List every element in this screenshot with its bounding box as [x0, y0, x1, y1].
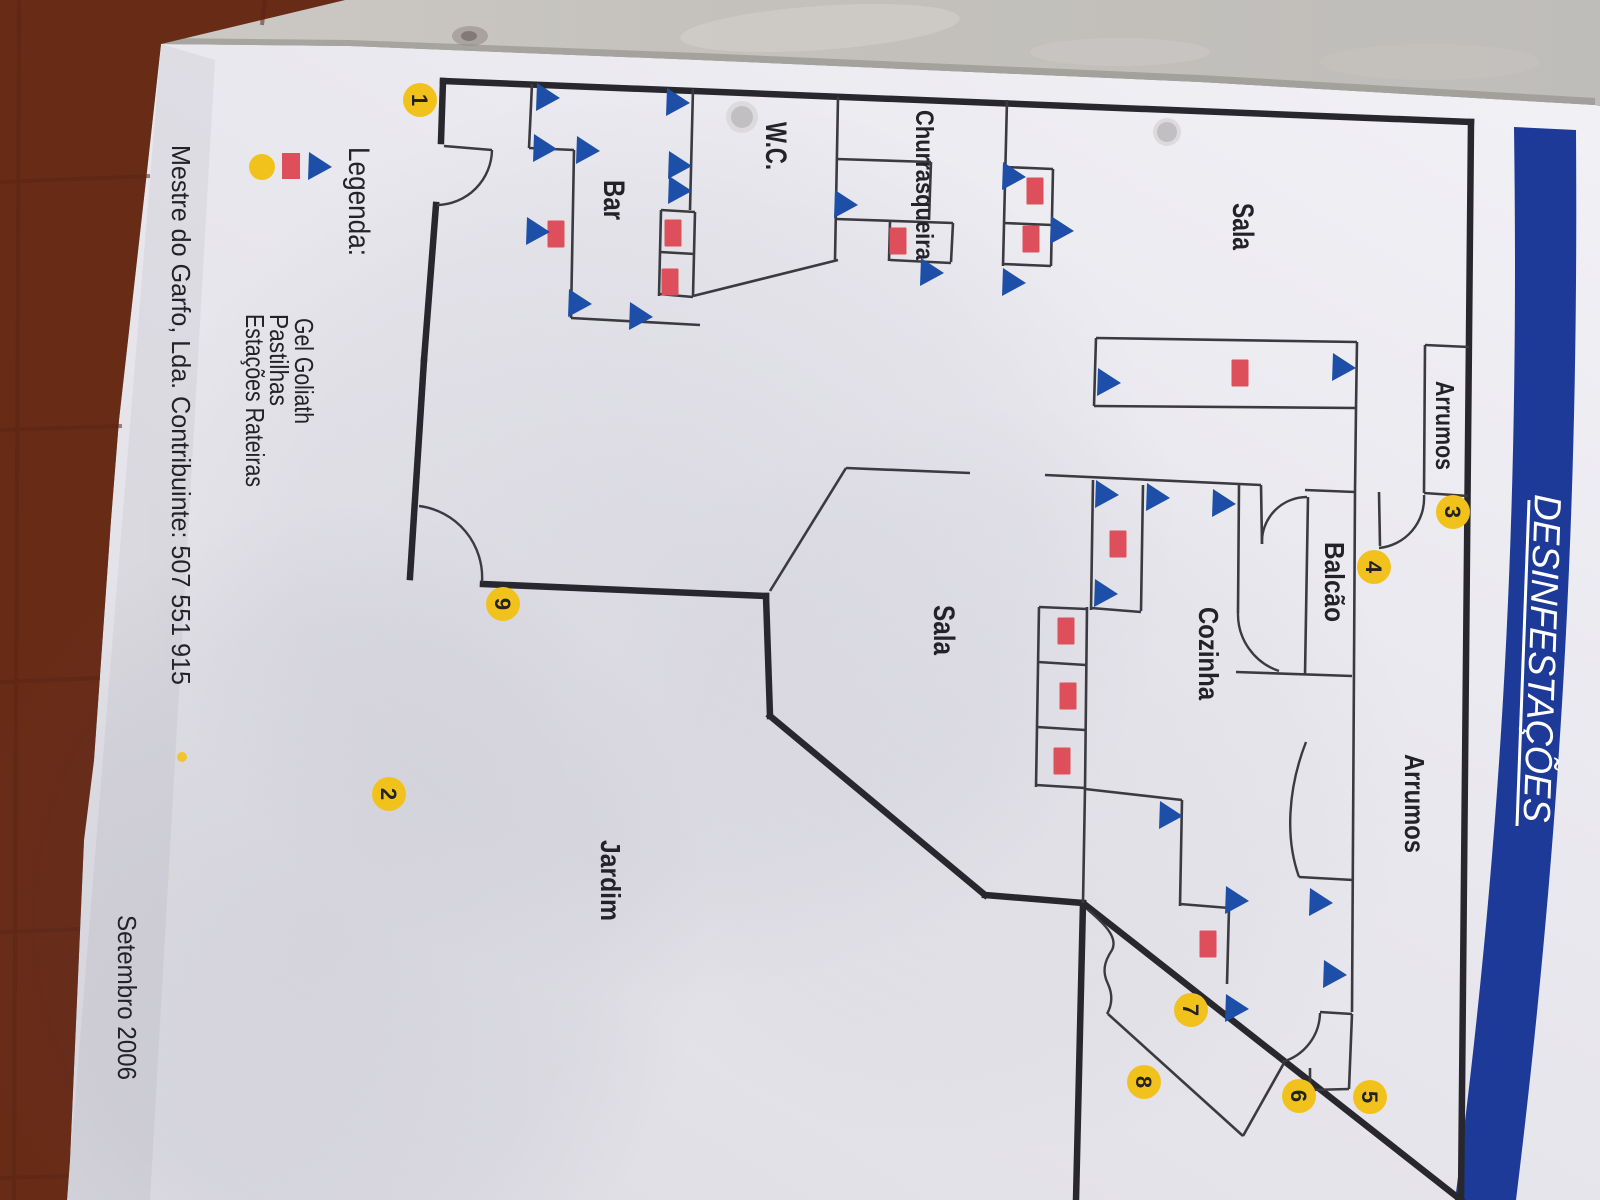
svg-text:5: 5 [1357, 1091, 1382, 1103]
svg-text:Sala: Sala [1226, 203, 1259, 250]
svg-text:Estações Rateiras: Estações Rateiras [240, 314, 270, 487]
svg-text:Balcão: Balcão [1319, 542, 1350, 622]
svg-text:Arrumos: Arrumos [1399, 754, 1430, 853]
svg-text:9: 9 [490, 598, 515, 610]
svg-text:Legenda:: Legenda: [342, 147, 375, 256]
svg-text:Cozinha: Cozinha [1193, 607, 1224, 700]
svg-text:8: 8 [1131, 1076, 1156, 1088]
svg-text:Bar: Bar [597, 180, 630, 220]
svg-text:W.C.: W.C. [759, 122, 792, 170]
svg-text:Churrasqueira: Churrasqueira [910, 110, 938, 261]
svg-text:Mestre do Garfo, Lda. Contribu: Mestre do Garfo, Lda. Contribuinte: 507 … [166, 145, 196, 685]
svg-text:Setembro 2006: Setembro 2006 [112, 915, 142, 1080]
svg-text:3: 3 [1440, 506, 1465, 518]
svg-text:Sala: Sala [927, 605, 960, 655]
svg-text:6: 6 [1286, 1090, 1311, 1102]
svg-text:4: 4 [1361, 561, 1386, 574]
svg-text:Jardim: Jardim [595, 840, 626, 921]
svg-text:2: 2 [376, 788, 401, 800]
svg-text:1: 1 [407, 94, 432, 106]
svg-text:7: 7 [1178, 1004, 1203, 1016]
svg-text:Arrumos: Arrumos [1430, 381, 1460, 470]
